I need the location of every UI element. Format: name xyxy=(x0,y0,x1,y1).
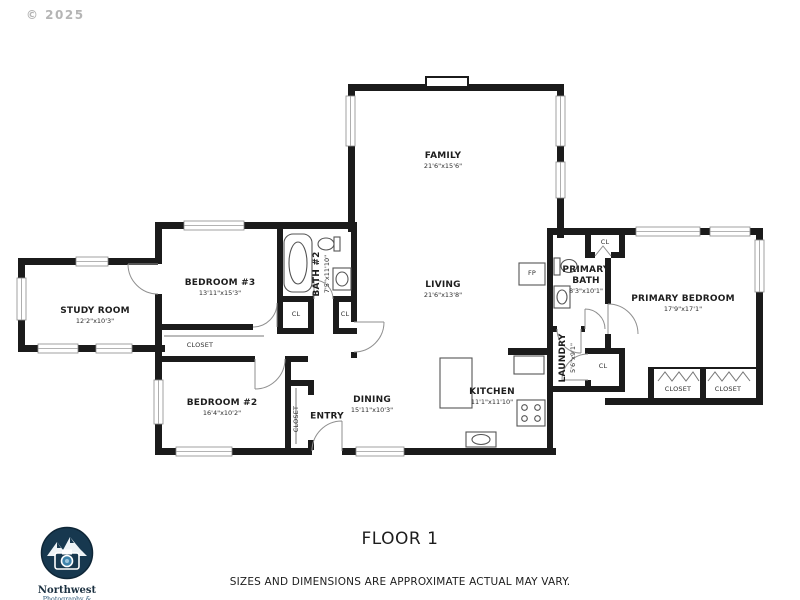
room-dims: 8'3"x10'1" xyxy=(560,287,612,295)
room-name: LIVING xyxy=(424,280,462,291)
room-label-bedroom3: BEDROOM #3 13'11"x15'3" xyxy=(185,278,256,298)
room-dims: 12'2"x10'3" xyxy=(60,318,130,326)
room-name: BEDROOM #3 xyxy=(185,278,256,289)
fridge-box xyxy=(514,356,544,374)
kitchen-island xyxy=(440,358,472,408)
room-label-dining: DINING 15'11"x10'3" xyxy=(351,395,393,415)
room-label-kitchen: KITCHEN 11'1"x11'10" xyxy=(469,387,515,407)
primary-bath-door xyxy=(585,309,605,329)
room-dims: 21'6"x13'8" xyxy=(424,292,462,300)
floor-title: FLOOR 1 xyxy=(362,529,439,549)
room-dims: 13'11"x15'3" xyxy=(185,290,256,298)
room-dims: 21'6"x15'6" xyxy=(424,163,462,171)
room-label-primary-bath: PRIMARY BATH 8'3"x10'1" xyxy=(560,265,612,295)
room-name: LAUNDRY xyxy=(558,333,569,382)
room-label-bedroom2: BEDROOM #2 16'4"x10'2" xyxy=(187,398,258,418)
stove-icon xyxy=(517,400,545,426)
room-label-family: FAMILY 21'6"x15'6" xyxy=(424,151,462,171)
family-bay-window xyxy=(426,77,468,87)
sink-icon-bath2 xyxy=(333,268,351,290)
room-dims: 15'11"x10'3" xyxy=(351,407,393,415)
logo-tagline: Photography & Media xyxy=(34,596,100,600)
room-label-primary-bedroom: PRIMARY BEDROOM 17'9"x17'1" xyxy=(631,294,735,314)
toilet-icon-bath2 xyxy=(318,237,340,251)
camera-icon xyxy=(55,550,79,570)
room-name: STUDY ROOM xyxy=(60,306,130,317)
room-name: BATH #2 xyxy=(312,251,323,296)
hall-door xyxy=(354,322,384,352)
room-name: PRIMARY BEDROOM xyxy=(631,294,735,305)
logo-name: Northwest xyxy=(34,585,100,596)
closet-rod-zigzag-1 xyxy=(658,372,699,381)
disclaimer: SIZES AND DIMENSIONS ARE APPROXIMATE ACT… xyxy=(230,576,570,588)
room-name: FAMILY xyxy=(424,151,462,162)
closet-label-entry: CLOSET xyxy=(293,406,301,432)
room-label-entry: ENTRY xyxy=(310,412,344,423)
primary-cl-bifold xyxy=(595,246,611,256)
front-door xyxy=(312,421,342,451)
copyright: © 2025 xyxy=(26,8,85,22)
floorplan-page: © 2025 FAMILY 21'6"x15'6" LIVING 21'6"x1… xyxy=(0,0,800,600)
closet-label-primary-2: CLOSET xyxy=(715,386,741,394)
closet-label-primary-1: CLOSET xyxy=(665,386,691,394)
room-dims: 17'9"x17'1" xyxy=(631,306,735,314)
cl-label-bath2-left: CL xyxy=(292,311,301,319)
cl-label-laundry: CL xyxy=(599,363,608,371)
logo-badge-icon xyxy=(40,526,94,580)
cl-label-primary-top: CL xyxy=(601,239,610,247)
room-name: DINING xyxy=(351,395,393,406)
bedroom3-door xyxy=(253,303,277,327)
room-label-bath2: BATH #2 7'5"x11'10" xyxy=(312,251,332,296)
closet-rod-zigzag-2 xyxy=(708,372,750,381)
cl-label-bath2-right: CL xyxy=(341,311,350,319)
room-label-living: LIVING 21'6"x13'8" xyxy=(424,280,462,300)
study-door xyxy=(128,264,158,294)
logo: Northwest Photography & Media xyxy=(34,526,100,600)
bathtub-icon xyxy=(284,234,312,292)
room-name: KITCHEN xyxy=(469,387,515,398)
room-dims: 11'1"x11'10" xyxy=(469,399,515,407)
room-name: ENTRY xyxy=(310,412,344,423)
fireplace-label: FP xyxy=(528,270,536,278)
room-label-study: STUDY ROOM 12'2"x10'3" xyxy=(60,306,130,326)
room-dims: 16'4"x10'2" xyxy=(187,410,258,418)
bedroom2-door xyxy=(255,359,285,389)
room-name: PRIMARY BATH xyxy=(560,265,612,287)
room-dims: 5'6"x9'1" xyxy=(570,333,578,382)
room-name: BEDROOM #2 xyxy=(187,398,258,409)
room-dims: 7'5"x11'10" xyxy=(324,251,332,296)
kitchen-sink-icon xyxy=(466,432,496,447)
closet-label-hall: CLOSET xyxy=(187,342,213,350)
room-label-laundry: LAUNDRY 5'6"x9'1" xyxy=(558,333,578,382)
